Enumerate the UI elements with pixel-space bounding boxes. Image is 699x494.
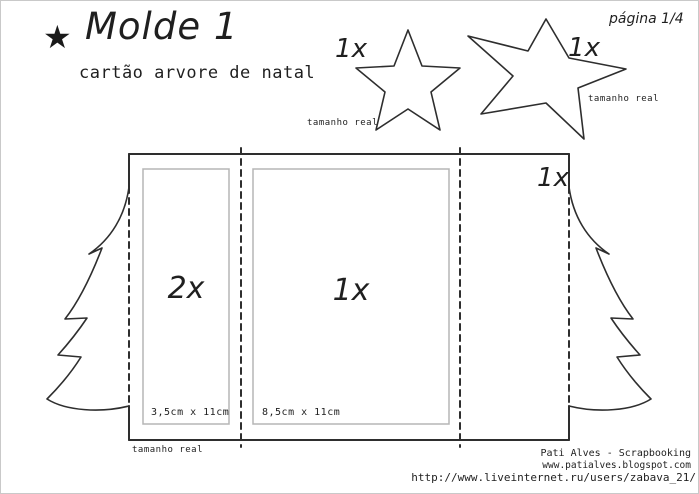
middle-panel-count-label: 1x <box>329 273 373 308</box>
right-tree-outline <box>569 187 651 410</box>
right-panel-count-label: 1x <box>533 163 573 193</box>
credit-blog-url: www.patialves.blogspot.com <box>431 460 691 471</box>
card-template-caption: tamanho real <box>132 445 203 455</box>
small-star-caption: tamanho real <box>307 118 378 128</box>
left-panel-size-label: 3,5cm x 11cm <box>151 407 229 418</box>
molde-page: ★ Molde 1 cartão arvore de natal página … <box>0 0 699 494</box>
left-tree-outline <box>47 187 129 410</box>
small-star-count-label: 1x <box>331 34 371 64</box>
large-star-caption: tamanho real <box>588 94 659 104</box>
watermark-url: http://www.liveinternet.ru/users/zabava_… <box>396 471 696 484</box>
stars-drawing <box>1 1 699 151</box>
small-star-outline-shape <box>356 30 460 130</box>
left-panel-count-label: 2x <box>164 271 208 306</box>
credit-author: Pati Alves - Scrapbooking <box>431 448 691 459</box>
large-star-count-label: 1x <box>564 33 604 63</box>
middle-panel-size-label: 8,5cm x 11cm <box>262 407 340 418</box>
